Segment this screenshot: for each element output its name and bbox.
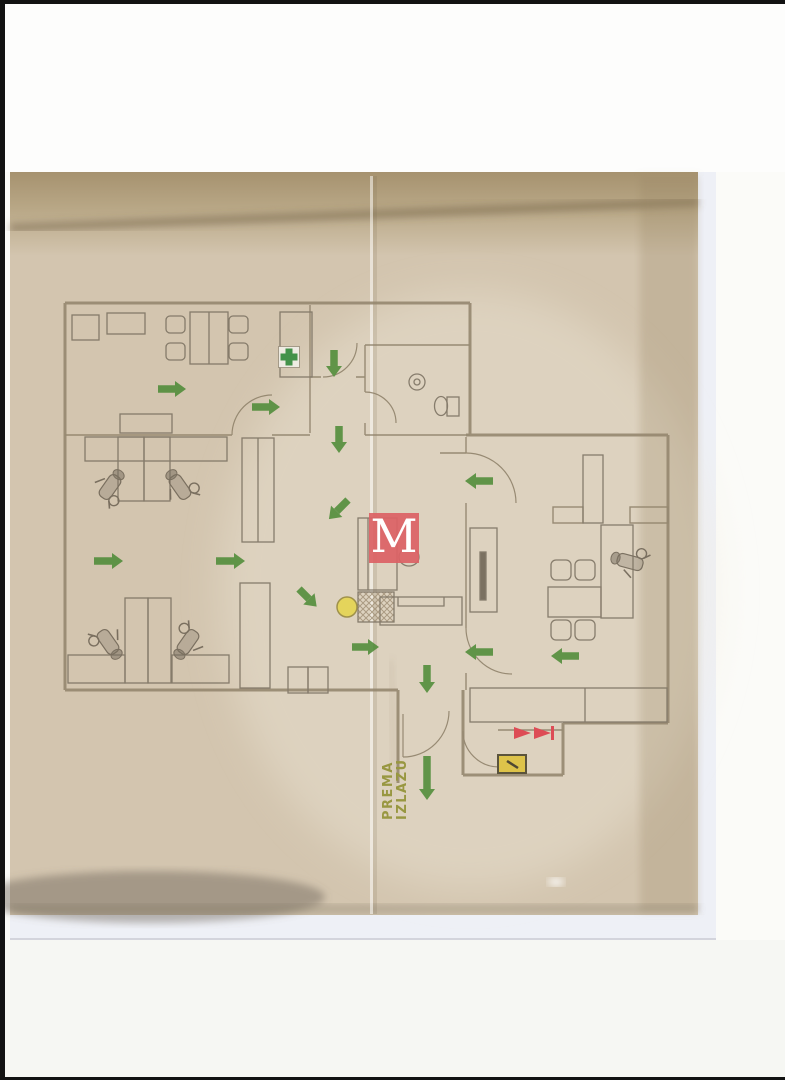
evacuation-plan-scan: PREMA IZLAZU M <box>0 0 785 1080</box>
agency-watermark: M <box>369 509 419 563</box>
exit-direction-label: PREMA IZLAZU <box>381 755 410 820</box>
scan-canvas: PREMA IZLAZU M <box>0 0 785 1080</box>
yellow-circle-icon <box>337 597 357 617</box>
watermark-letter: M <box>370 509 417 563</box>
first-aid-sign <box>279 347 300 368</box>
assembly-point-marker <box>337 597 357 617</box>
electrical-panel-sign <box>498 755 526 773</box>
